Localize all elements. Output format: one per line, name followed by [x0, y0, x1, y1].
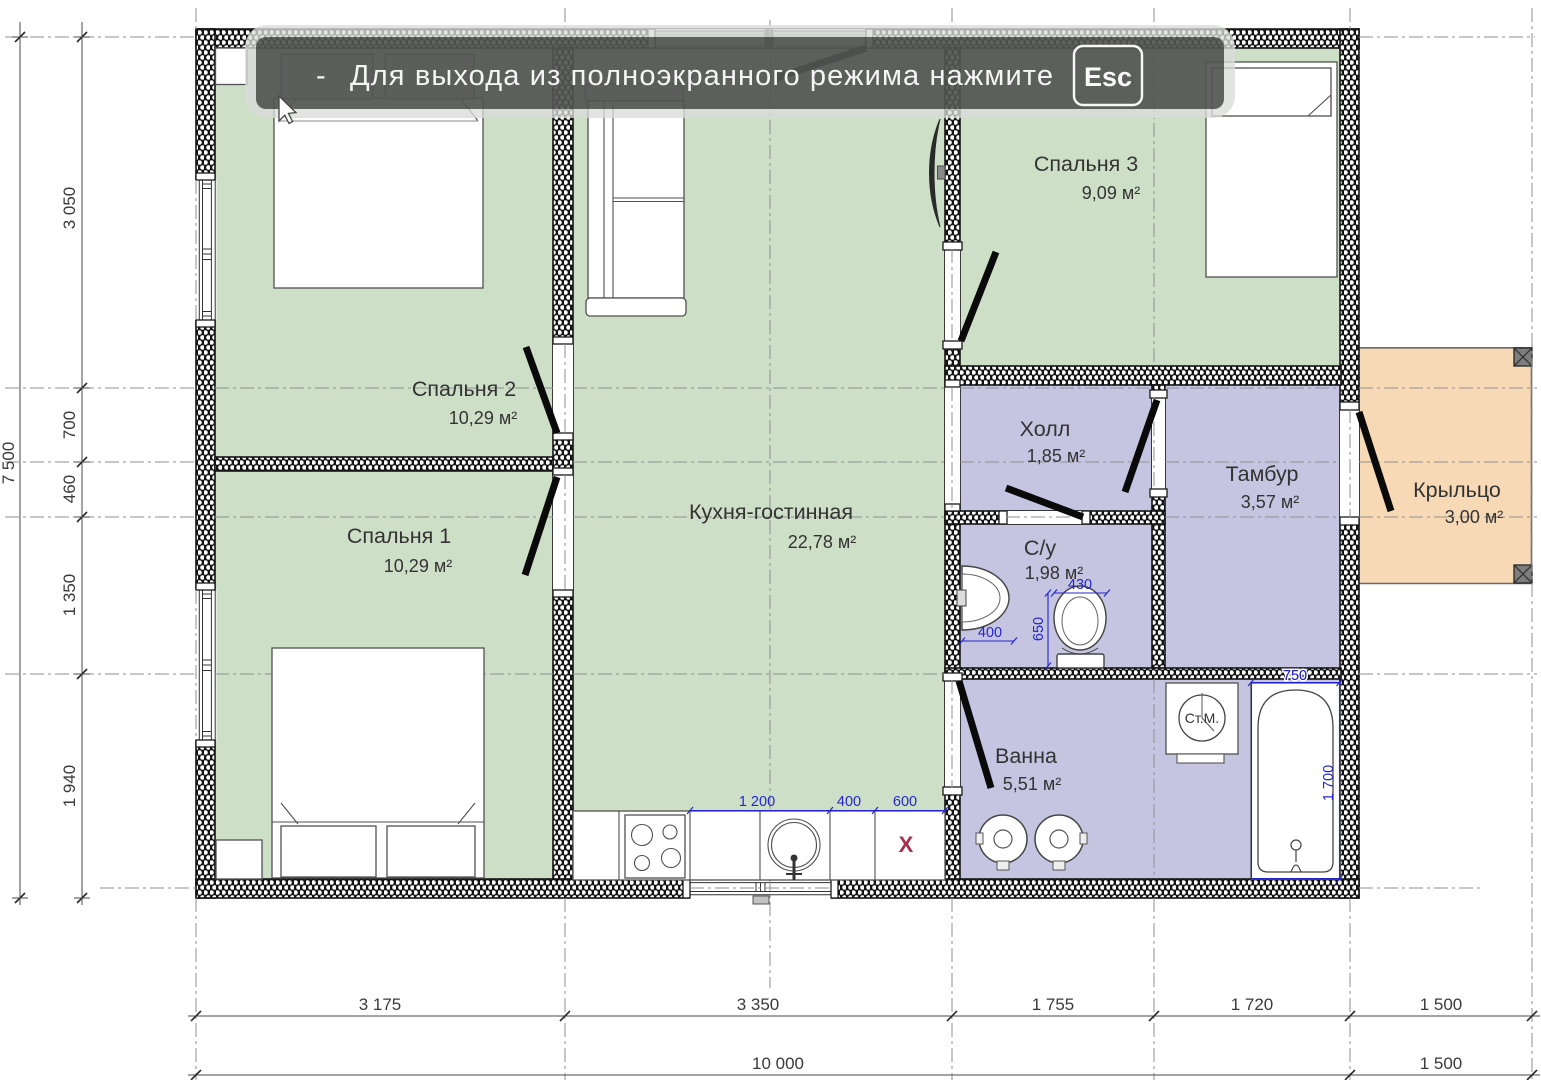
svg-text:7 500: 7 500	[0, 442, 18, 485]
svg-text:22,78 м²: 22,78 м²	[788, 532, 856, 552]
svg-text:Спальня 3: Спальня 3	[1034, 152, 1138, 176]
svg-text:460: 460	[60, 475, 79, 503]
svg-text:1 200: 1 200	[739, 794, 775, 810]
svg-text:Спальня 1: Спальня 1	[347, 524, 451, 548]
svg-text:1 720: 1 720	[1231, 995, 1274, 1014]
svg-text:700: 700	[60, 411, 79, 439]
svg-text:430: 430	[1068, 577, 1092, 593]
svg-text:1 700: 1 700	[1321, 765, 1337, 801]
svg-text:1 500: 1 500	[1420, 995, 1463, 1014]
svg-text:9,09 м²: 9,09 м²	[1082, 183, 1140, 203]
svg-text:3 350: 3 350	[737, 995, 780, 1014]
svg-text:Холл: Холл	[1020, 417, 1071, 441]
svg-text:Для выхода из полноэкранного р: Для выхода из полноэкранного режима нажм…	[350, 60, 1053, 92]
svg-text:10,29 м²: 10,29 м²	[449, 408, 517, 428]
svg-text:1,85 м²: 1,85 м²	[1027, 446, 1085, 466]
svg-text:Ванна: Ванна	[995, 744, 1057, 768]
svg-text:3,57 м²: 3,57 м²	[1241, 492, 1299, 512]
svg-text:-: -	[316, 60, 326, 92]
svg-text:Тамбур: Тамбур	[1226, 462, 1299, 486]
svg-text:10,29 м²: 10,29 м²	[384, 556, 452, 576]
svg-text:Кухня-гостинная: Кухня-гостинная	[689, 500, 853, 524]
svg-text:5,51 м²: 5,51 м²	[1003, 774, 1061, 794]
svg-text:600: 600	[893, 794, 917, 810]
svg-text:400: 400	[978, 625, 1002, 641]
svg-text:Esc: Esc	[1084, 62, 1132, 92]
svg-text:10 000: 10 000	[752, 1054, 804, 1073]
svg-text:3,00 м²: 3,00 м²	[1445, 507, 1503, 527]
svg-text:Спальня 2: Спальня 2	[412, 377, 516, 401]
svg-text:1 940: 1 940	[60, 765, 79, 808]
svg-text:650: 650	[1031, 617, 1047, 641]
svg-text:С/у: С/у	[1024, 536, 1057, 560]
svg-text:1 500: 1 500	[1420, 1054, 1463, 1073]
svg-text:750: 750	[1283, 668, 1307, 684]
svg-text:400: 400	[837, 794, 861, 810]
svg-text:1 755: 1 755	[1032, 995, 1075, 1014]
svg-text:X: X	[899, 832, 914, 857]
svg-text:1 350: 1 350	[60, 574, 79, 617]
svg-text:Крыльцо: Крыльцо	[1413, 478, 1501, 502]
svg-text:3 050: 3 050	[60, 187, 79, 230]
svg-text:3 175: 3 175	[359, 995, 402, 1014]
svg-text:Ст.М.: Ст.М.	[1185, 710, 1219, 726]
